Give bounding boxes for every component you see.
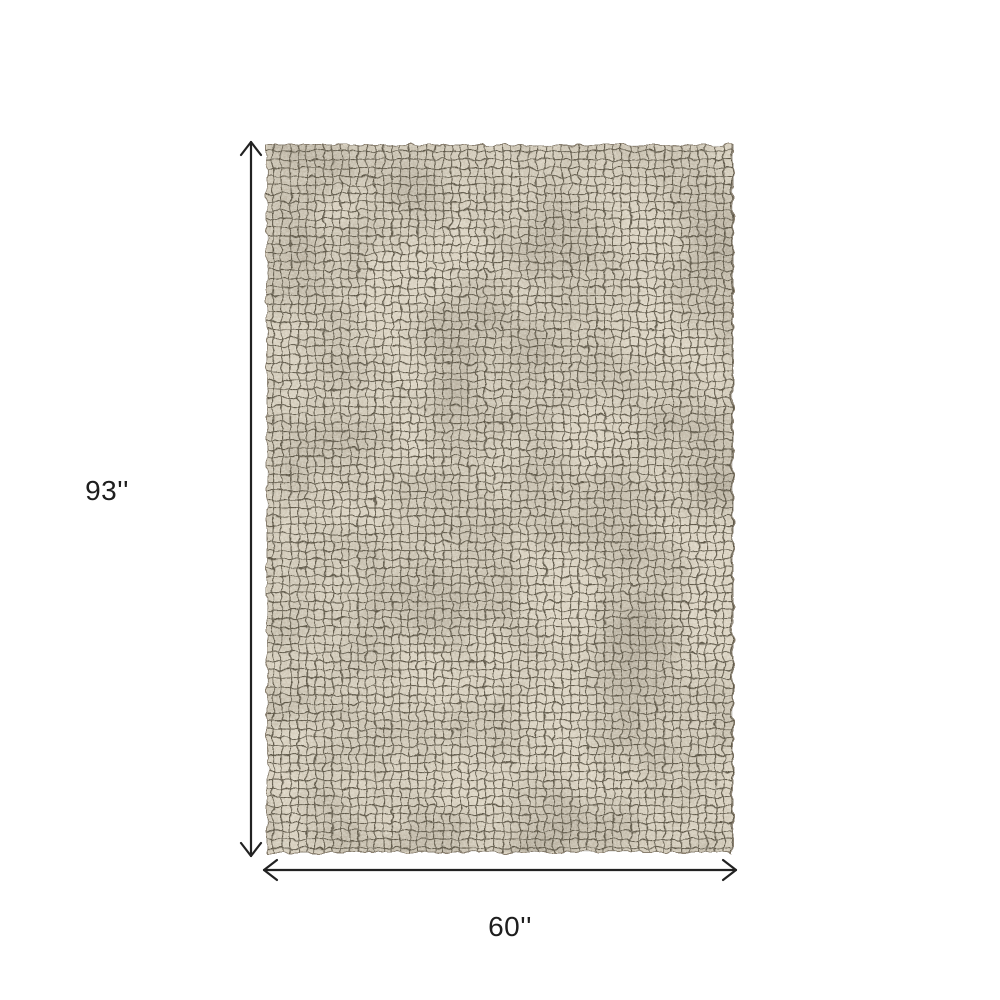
rug-texture	[264, 142, 736, 855]
double-headed-arrow-vertical-icon	[237, 137, 265, 861]
product-dimension-diagram: 93'' 60''	[0, 0, 1000, 1000]
height-dimension-label: 93''	[47, 473, 167, 509]
width-dimension-label: 60''	[450, 909, 570, 945]
rug-image	[264, 142, 736, 855]
double-headed-arrow-horizontal-icon	[261, 856, 739, 884]
